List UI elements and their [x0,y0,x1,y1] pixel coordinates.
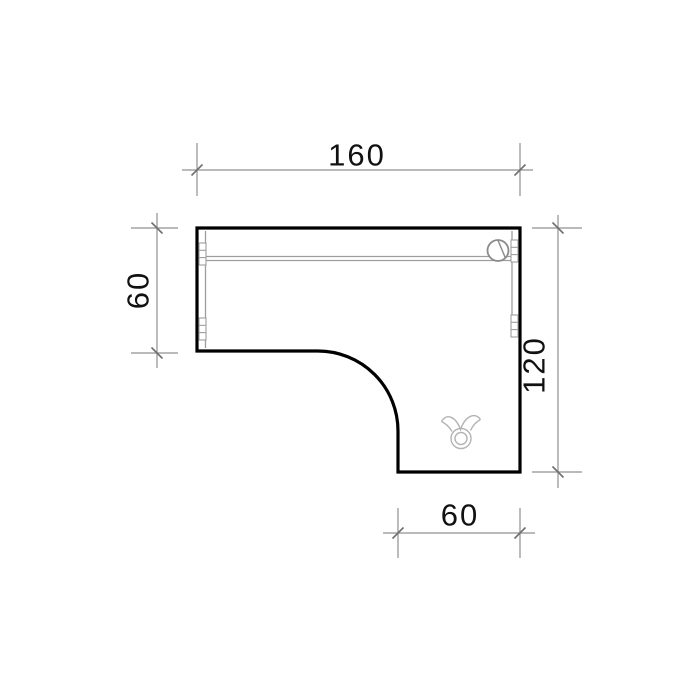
dimension-label-bottom: 60 [441,500,479,531]
drawing-canvas: 160 60 120 60 [0,0,700,700]
edge-connector-icon [511,315,518,337]
dimension-label-top: 160 [328,140,386,171]
dimension-label-right: 120 [519,336,550,394]
desk-outline [197,228,520,472]
edge-connector-icon [199,243,206,265]
desk-plan-svg [0,0,700,700]
cable-grommet-icon [488,240,509,261]
edge-connector-icon [511,240,518,262]
edge-connector-icon [199,318,206,340]
dimension-label-left: 60 [123,271,154,309]
